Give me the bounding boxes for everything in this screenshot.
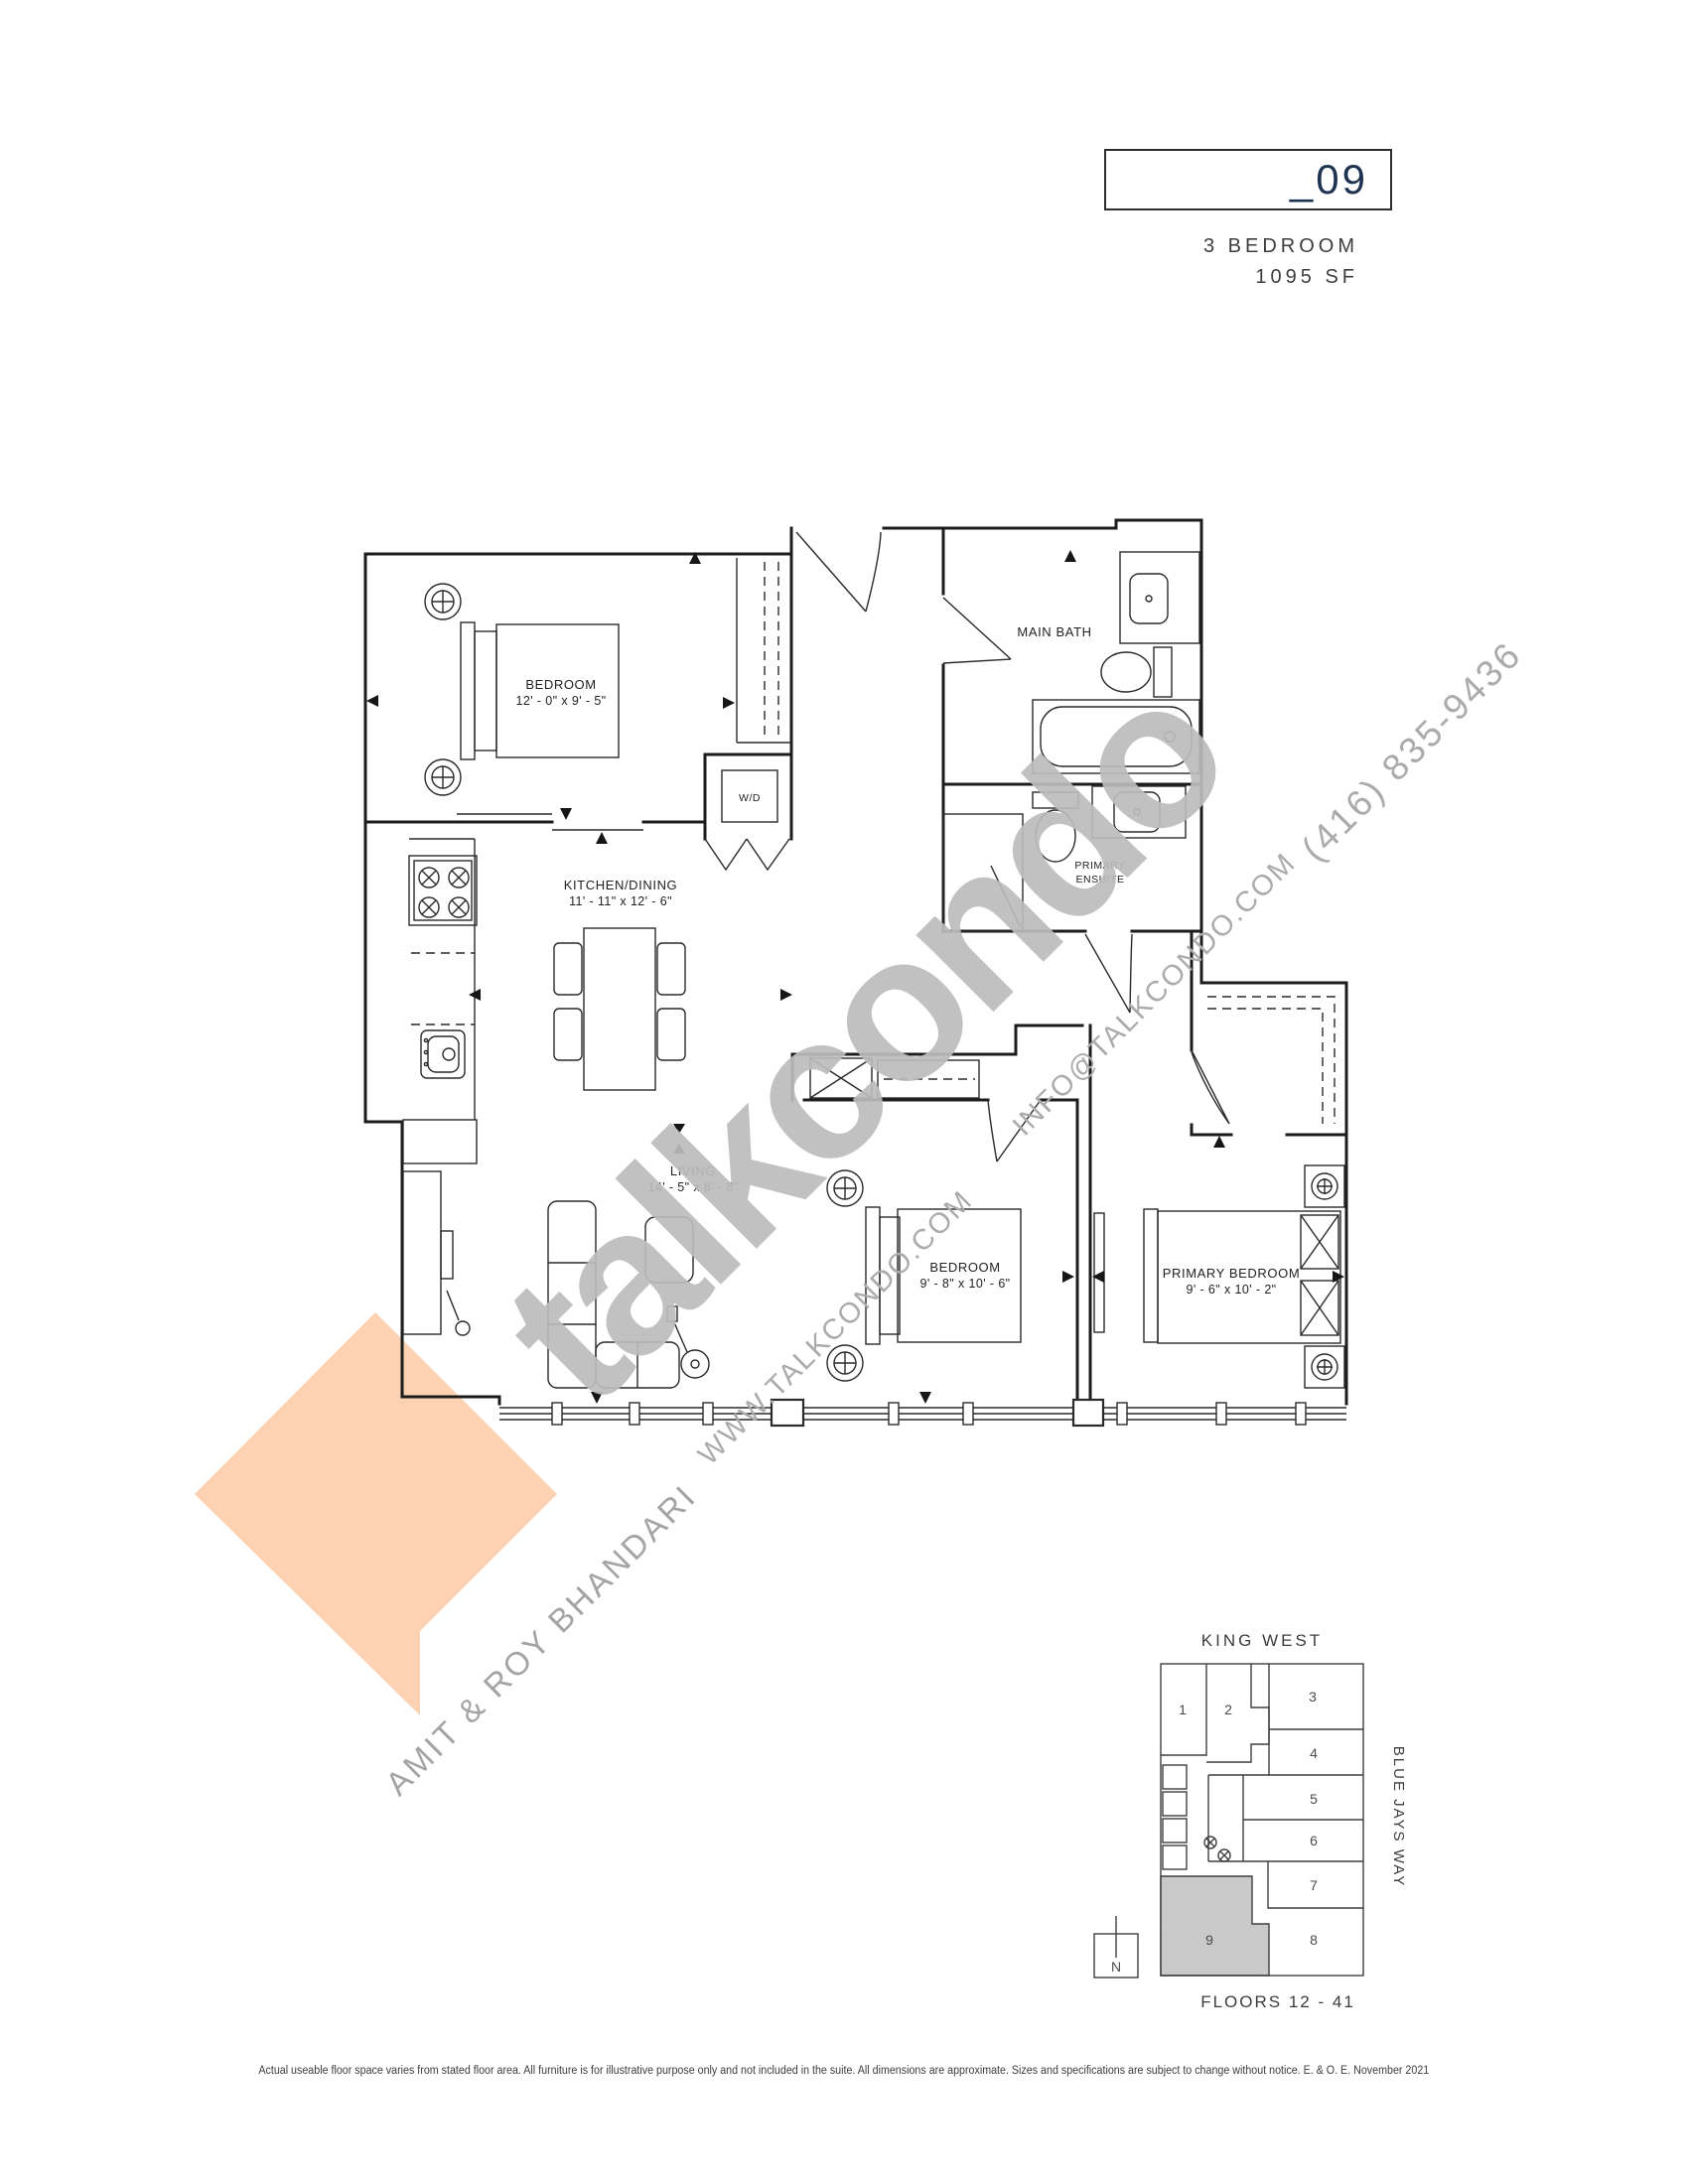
unit-number: _09	[1290, 156, 1368, 204]
closet-dashes	[411, 562, 1335, 1124]
dims-primary-bedroom: 9' - 6" x 10' - 2"	[1186, 1283, 1276, 1297]
unit-subtitle: 3 BEDROOM 1095 SF	[1203, 231, 1358, 293]
floorplan-page: _09 3 BEDROOM 1095 SF	[0, 0, 1688, 2184]
unit-area: 1095 SF	[1203, 262, 1358, 293]
keyplan-unit-1: 1	[1179, 1702, 1187, 1717]
label-bedroom-top: BEDROOM	[525, 677, 596, 692]
dims-kitchen-dining: 11' - 11" x 12' - 6"	[569, 894, 672, 908]
window-band	[499, 1400, 1346, 1426]
label-bedroom-middle: BEDROOM	[929, 1260, 1000, 1275]
footer: Actual useable floor space varies from s…	[0, 2061, 1688, 2079]
street-king-west: KING WEST	[1201, 1631, 1323, 1650]
unit-9-highlight	[1161, 1876, 1269, 1976]
floor-plan: BEDROOM 12' - 0" x 9' - 5" MAIN BATH W/D…	[338, 491, 1370, 1434]
keyplan-unit-8: 8	[1310, 1932, 1318, 1948]
keyplan-unit-2: 2	[1224, 1702, 1232, 1717]
unit-title-box: _09	[1104, 149, 1392, 210]
doors	[457, 532, 1229, 1161]
keyplan-unit-5: 5	[1310, 1791, 1318, 1807]
label-kitchen-dining: KITCHEN/DINING	[564, 878, 678, 892]
dims-living: 14' - 5" x 8' - 8"	[647, 1180, 738, 1194]
keyplan-unit-6: 6	[1310, 1833, 1318, 1848]
street-blue-jays-way: BLUE JAYS WAY	[1390, 1746, 1407, 1887]
keyplan-unit-7: 7	[1310, 1877, 1318, 1893]
label-primary-ensuite-1: PRIMARY	[1074, 860, 1125, 872]
keyplan-unit-3: 3	[1309, 1689, 1317, 1705]
label-primary-bedroom: PRIMARY BEDROOM	[1163, 1266, 1301, 1281]
label-living: LIVING	[670, 1163, 716, 1178]
label-main-bath: MAIN BATH	[1017, 624, 1091, 639]
key-plan: 1 2 3 4 5 6 7 8 9 KING WEST BLUE JAYS WA…	[1072, 1578, 1430, 2015]
keyplan-unit-9: 9	[1205, 1932, 1213, 1948]
label-primary-ensuite-2: ENSUITE	[1075, 874, 1124, 886]
label-wd: W/D	[739, 792, 761, 804]
unit-type: 3 BEDROOM	[1203, 231, 1358, 262]
room-labels: BEDROOM 12' - 0" x 9' - 5" MAIN BATH W/D…	[515, 624, 1300, 1297]
dims-bedroom-top: 12' - 0" x 9' - 5"	[515, 694, 606, 708]
keyplan-unit-4: 4	[1310, 1745, 1318, 1761]
dims-bedroom-middle: 9' - 8" x 10' - 6"	[919, 1277, 1010, 1291]
north-label: N	[1111, 1959, 1121, 1975]
disclaimer-text: Actual useable floor space varies from s…	[259, 2065, 1430, 2077]
floors-label: FLOORS 12 - 41	[1200, 1992, 1355, 2011]
